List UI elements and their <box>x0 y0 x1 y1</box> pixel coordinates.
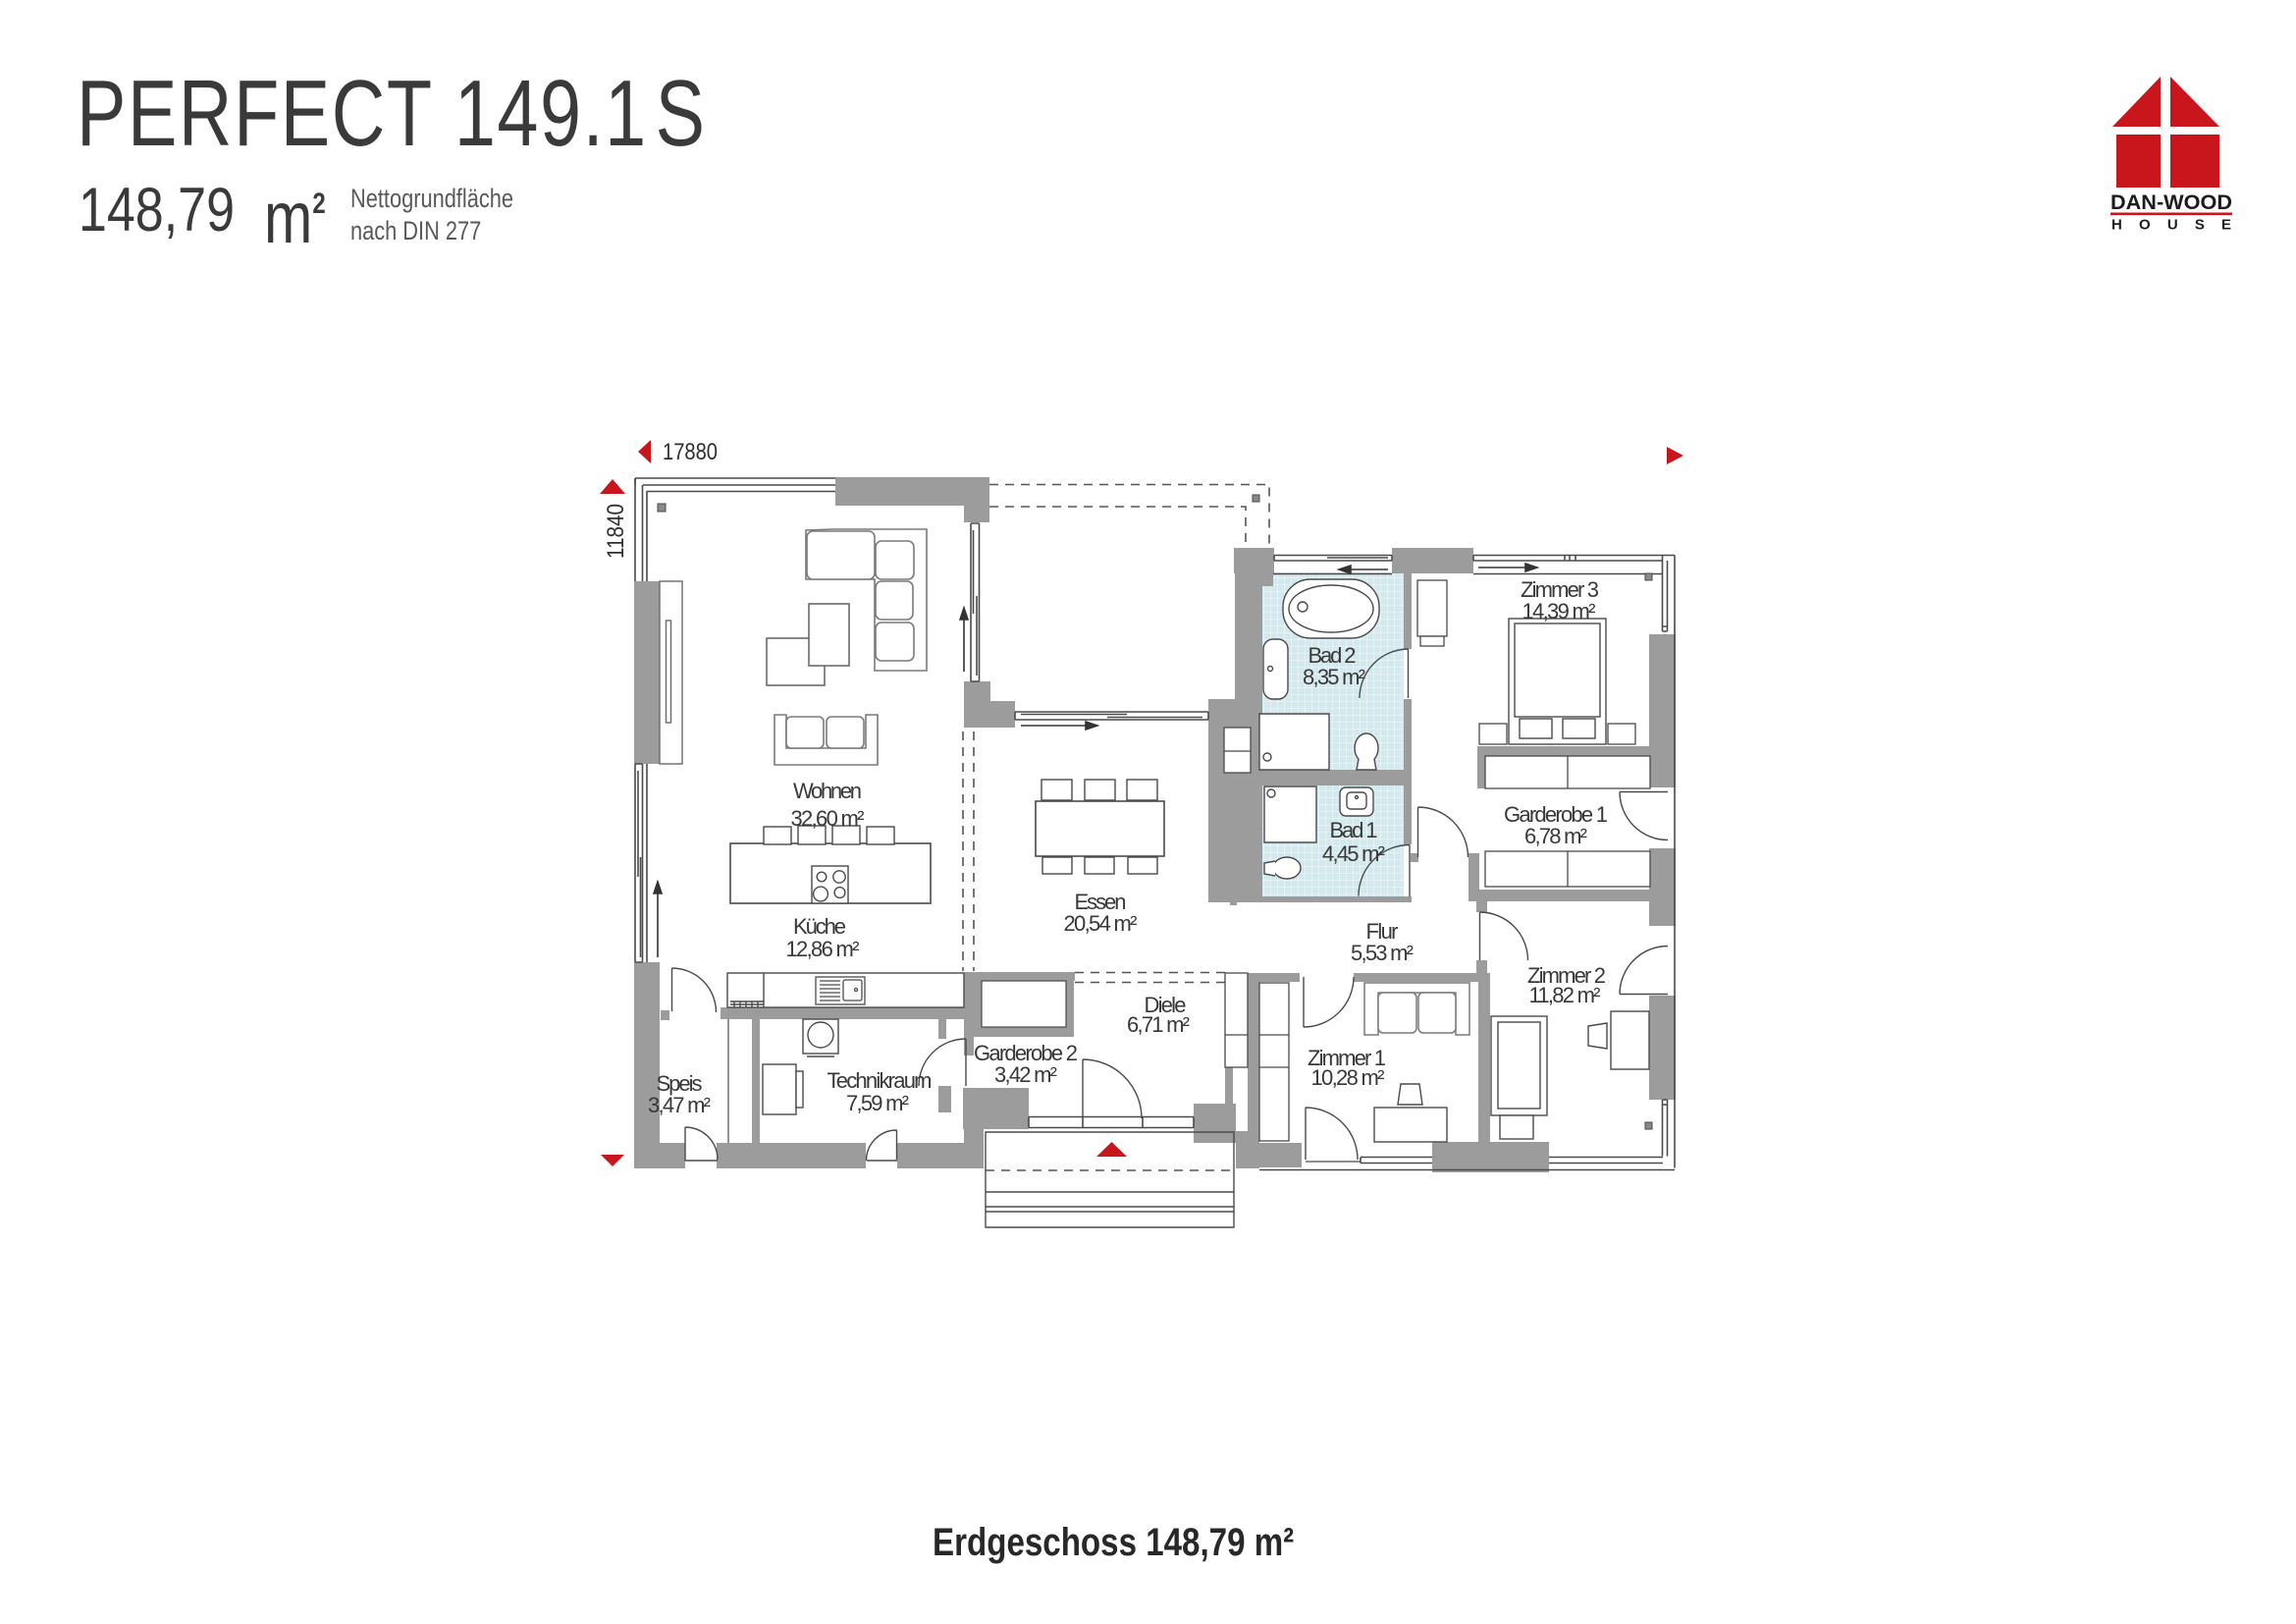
svg-text:Technikraum: Technikraum <box>828 1068 933 1093</box>
svg-text:10,28 m²: 10,28 m² <box>1311 1065 1385 1090</box>
svg-text:32,60 m²: 32,60 m² <box>791 806 865 831</box>
svg-text:6,78 m²: 6,78 m² <box>1524 824 1587 848</box>
svg-text:6,71 m²: 6,71 m² <box>1127 1012 1190 1037</box>
svg-text:Bad 1: Bad 1 <box>1330 818 1378 842</box>
svg-text:7,59 m²: 7,59 m² <box>846 1091 909 1115</box>
svg-text:20,54 m²: 20,54 m² <box>1064 911 1138 936</box>
svg-text:8,35 m²: 8,35 m² <box>1303 665 1365 689</box>
svg-text:5,53 m²: 5,53 m² <box>1351 941 1414 965</box>
svg-text:14,39 m²: 14,39 m² <box>1522 599 1596 623</box>
svg-text:12,86 m²: 12,86 m² <box>786 937 860 961</box>
svg-text:Wohnen: Wohnen <box>793 779 862 803</box>
svg-text:4,45 m²: 4,45 m² <box>1322 841 1385 866</box>
svg-text:11840: 11840 <box>603 504 629 559</box>
svg-text:17880: 17880 <box>663 439 718 465</box>
svg-text:3,42 m²: 3,42 m² <box>994 1062 1057 1087</box>
svg-text:Küche: Küche <box>793 914 846 939</box>
svg-text:11,82 m²: 11,82 m² <box>1529 983 1601 1007</box>
svg-text:3,47 m²: 3,47 m² <box>648 1093 711 1117</box>
